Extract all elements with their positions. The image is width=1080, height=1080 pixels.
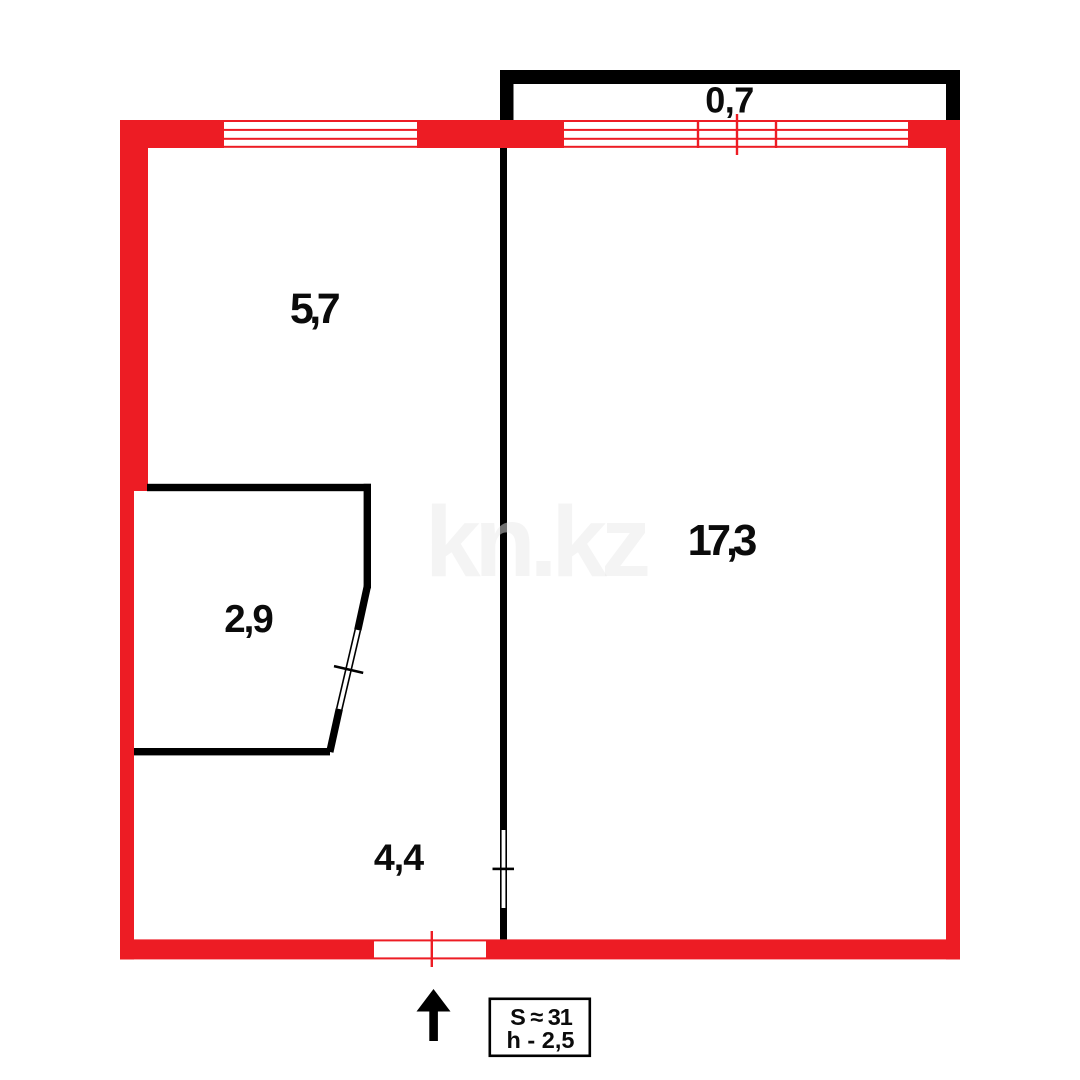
svg-text:2,9: 2,9	[224, 598, 272, 641]
svg-text:17,3: 17,3	[688, 517, 756, 565]
svg-text:4,4: 4,4	[374, 836, 424, 878]
svg-text:kn.kz: kn.kz	[425, 486, 648, 598]
svg-text:5,7: 5,7	[290, 285, 340, 333]
svg-text:0,7: 0,7	[705, 80, 754, 121]
svg-text:h - 2,5: h - 2,5	[507, 1027, 575, 1053]
